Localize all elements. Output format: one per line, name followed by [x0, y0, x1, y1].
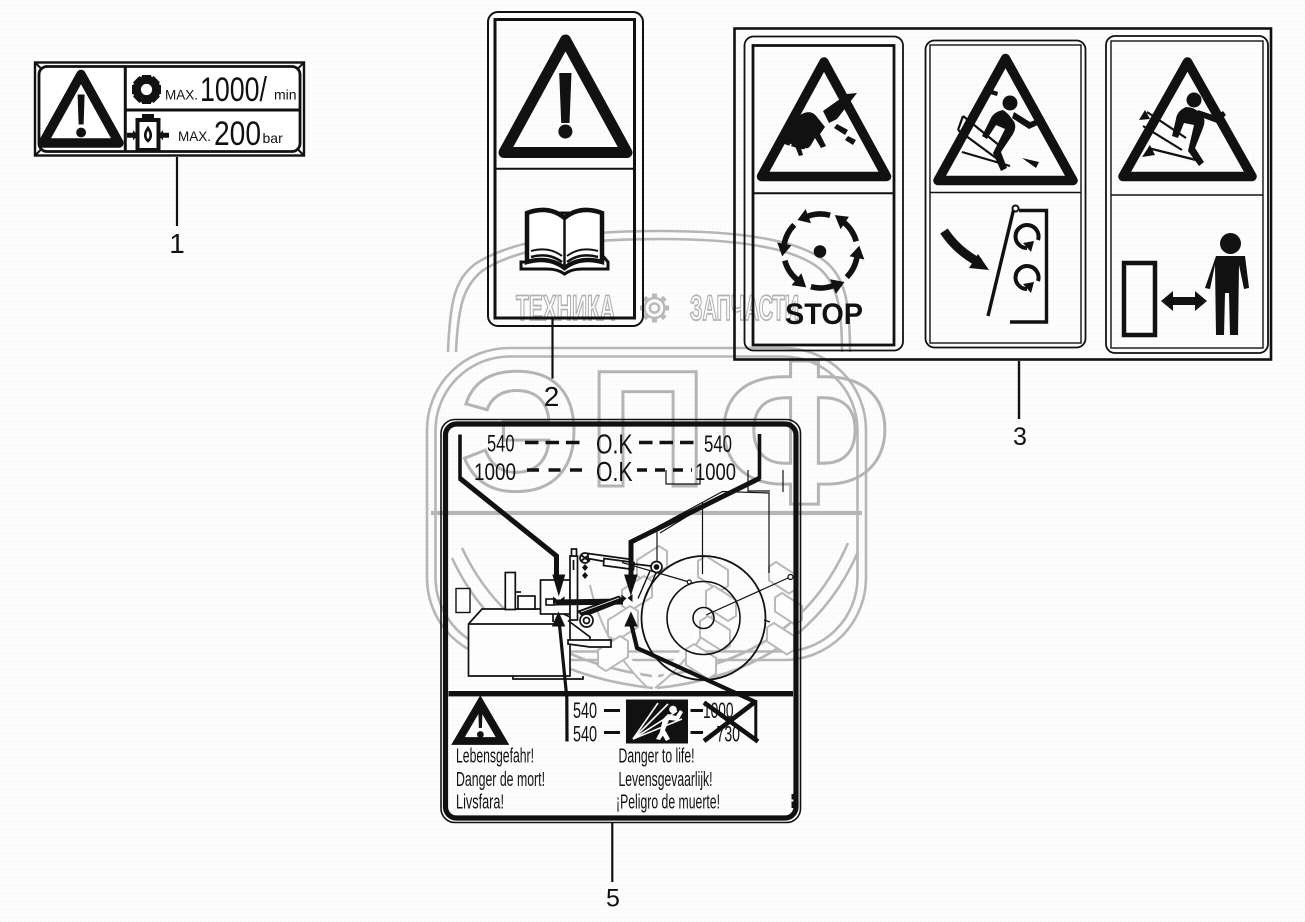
svg-text:STOP: STOP: [785, 298, 863, 331]
svg-text:1: 1: [169, 228, 185, 259]
svg-text:min: min: [274, 87, 297, 103]
svg-text:MAX.: MAX.: [165, 88, 198, 103]
svg-text:ТЕХНИКА: ТЕХНИКА: [516, 289, 615, 328]
svg-text:Livsfara!: Livsfara!: [456, 792, 504, 814]
svg-text:Lebensgefahr!: Lebensgefahr!: [456, 746, 534, 768]
svg-text:Ф: Ф: [717, 318, 892, 547]
svg-text:540: 540: [487, 431, 515, 458]
svg-text:Danger de mort!: Danger de mort!: [456, 769, 545, 791]
svg-text:1000: 1000: [695, 459, 736, 486]
svg-text:540: 540: [573, 722, 597, 747]
svg-text:¡Peligro de muerte!: ¡Peligro de muerte!: [616, 792, 720, 814]
svg-text:2: 2: [544, 381, 560, 412]
svg-text:5: 5: [606, 885, 620, 913]
svg-text:MAX.: MAX.: [178, 129, 211, 144]
svg-text:540: 540: [573, 698, 597, 723]
svg-text:O.K: O.K: [596, 429, 633, 460]
svg-text:200: 200: [214, 115, 261, 153]
svg-text:3: 3: [1013, 423, 1027, 451]
svg-text:1000: 1000: [474, 459, 516, 486]
svg-text:540: 540: [704, 431, 732, 458]
svg-text:Danger to life!: Danger to life!: [619, 746, 695, 768]
svg-text:Э: Э: [460, 337, 581, 527]
svg-text:Levensgevaarlijk!: Levensgevaarlijk!: [619, 769, 713, 791]
svg-text:O.K: O.K: [596, 456, 633, 487]
svg-text:1000/: 1000/: [200, 71, 267, 109]
svg-text:bar: bar: [263, 130, 284, 146]
